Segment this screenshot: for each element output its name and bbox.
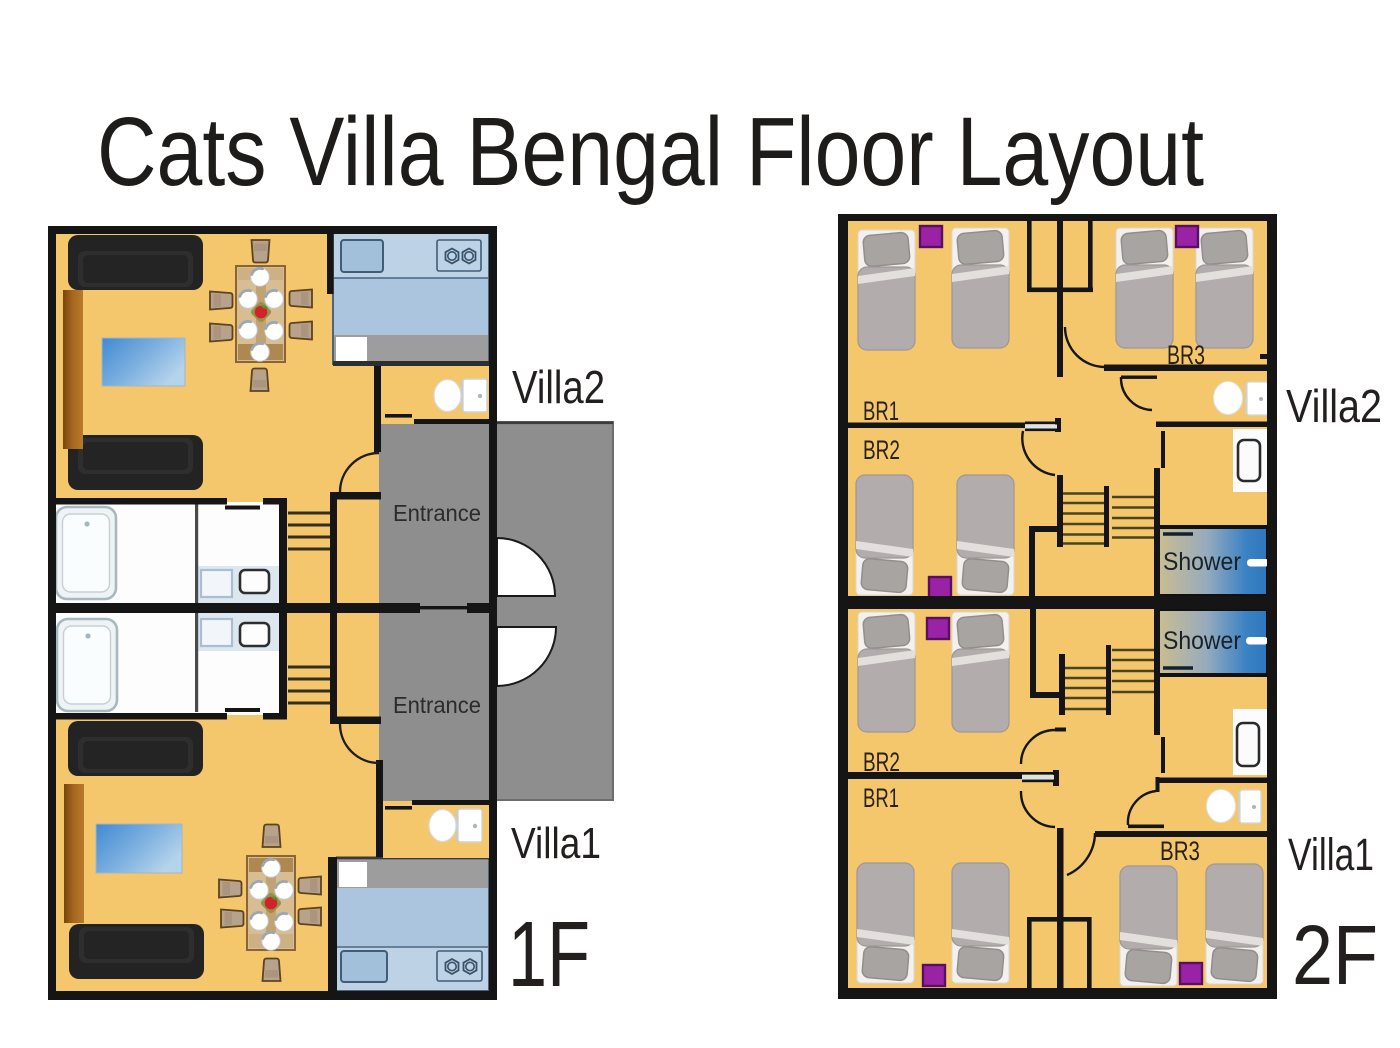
svg-text:Villa1: Villa1 bbox=[511, 819, 601, 868]
svg-text:BR3: BR3 bbox=[1160, 836, 1200, 866]
svg-text:Villa1: Villa1 bbox=[1288, 829, 1374, 880]
svg-text:Villa2: Villa2 bbox=[1286, 380, 1382, 432]
svg-text:BR1: BR1 bbox=[863, 783, 899, 813]
svg-text:Entrance: Entrance bbox=[393, 500, 481, 526]
svg-text:Entrance: Entrance bbox=[393, 692, 481, 718]
svg-text:2F: 2F bbox=[1292, 908, 1378, 1002]
svg-text:Shower: Shower bbox=[1163, 548, 1241, 576]
svg-text:BR2: BR2 bbox=[863, 747, 900, 777]
svg-text:Cats Villa Bengal Floor Layout: Cats Villa Bengal Floor Layout bbox=[97, 97, 1204, 206]
svg-text:BR1: BR1 bbox=[863, 396, 899, 426]
svg-text:1F: 1F bbox=[508, 902, 590, 1006]
svg-text:BR2: BR2 bbox=[863, 435, 900, 465]
svg-text:Shower: Shower bbox=[1163, 627, 1241, 655]
svg-text:Villa2: Villa2 bbox=[512, 361, 605, 413]
svg-text:BR3: BR3 bbox=[1167, 340, 1205, 370]
